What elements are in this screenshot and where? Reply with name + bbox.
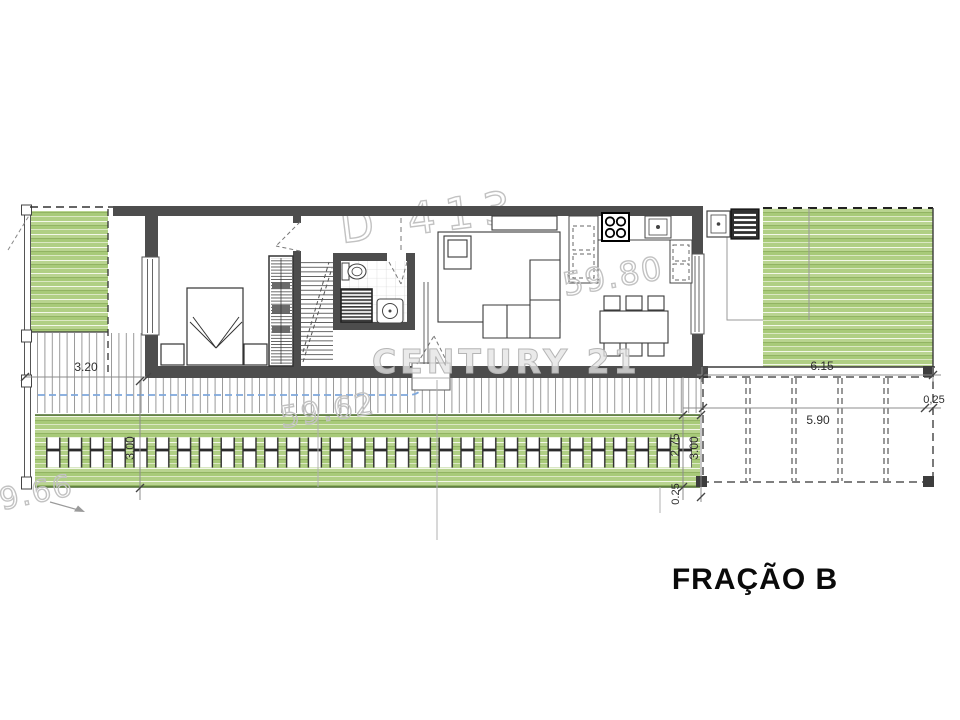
chair xyxy=(648,296,664,310)
dim-terrace-width: 3.20 xyxy=(74,360,98,374)
stove xyxy=(602,213,629,241)
watermark-plot-length: 9.66 xyxy=(0,468,77,518)
watermark-brand: CENTURY 21 xyxy=(372,342,641,381)
shower xyxy=(341,289,372,322)
bed xyxy=(187,288,243,365)
wardrobe xyxy=(269,256,293,366)
dim-planter-edge: 0.25 xyxy=(670,483,682,504)
toilet xyxy=(348,264,366,279)
unit-label: FRAÇÃO B xyxy=(672,562,838,596)
kitchen-window xyxy=(691,254,704,334)
chair xyxy=(604,296,620,310)
stairs xyxy=(301,262,333,362)
wall-bedroom xyxy=(293,251,301,366)
chair xyxy=(626,296,642,310)
sideboard xyxy=(492,216,557,230)
planter-boxes xyxy=(41,438,692,468)
chair xyxy=(648,342,664,356)
dim-right-garden-width: 6.15 xyxy=(810,359,834,373)
nightstand-left xyxy=(161,344,184,365)
dim-terrace-depth: 3.00 xyxy=(123,436,137,460)
dim-planter-depth: 2.75 xyxy=(668,433,682,457)
dim-right-edge: 0,25 xyxy=(923,394,944,406)
dim-carport-width: 5.90 xyxy=(806,413,830,427)
dining-table xyxy=(600,311,668,343)
left-garden xyxy=(31,211,108,332)
floor-plan-page: D 413 xyxy=(0,0,960,720)
outdoor-kitchen xyxy=(707,209,759,239)
floor-plan-drawing: D 413 xyxy=(0,0,960,720)
gate-swing xyxy=(8,214,30,250)
nightstand-right xyxy=(244,344,267,365)
dim-outdoor-depth: 3.00 xyxy=(687,436,701,460)
post xyxy=(923,476,934,487)
wall-bathroom xyxy=(333,322,415,330)
bathroom xyxy=(341,261,407,323)
bedroom-window xyxy=(142,257,159,335)
